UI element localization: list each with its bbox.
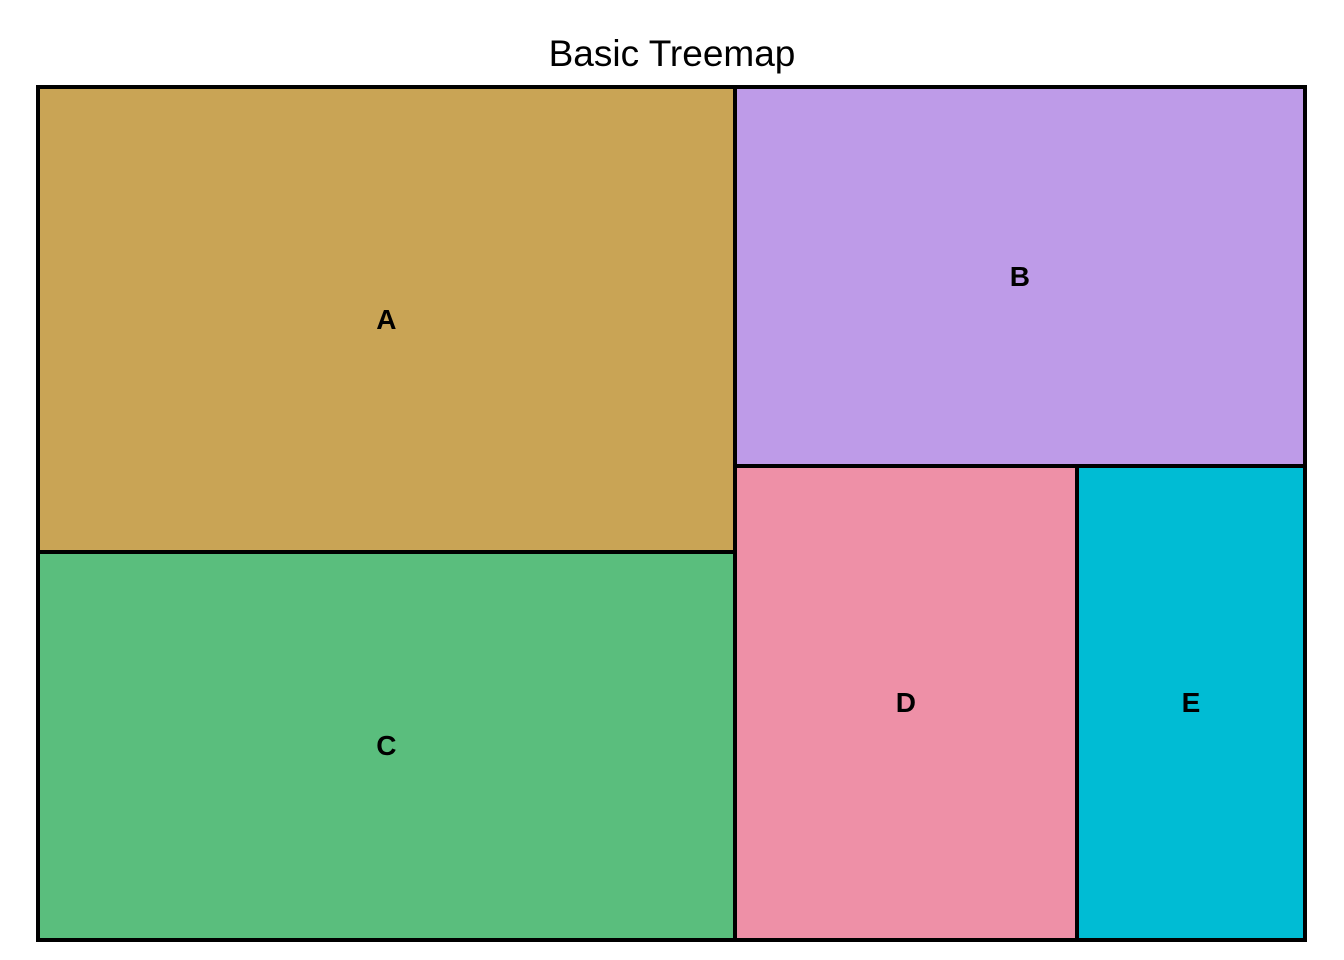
treemap-cell-c-label: C	[376, 732, 396, 760]
treemap-cell-d-label: D	[896, 689, 916, 717]
treemap-left-column: A C	[38, 87, 735, 940]
treemap-cell-d[interactable]: D	[735, 466, 1077, 940]
treemap-figure: Basic Treemap A C B D E	[0, 0, 1344, 960]
treemap-bottom-right-row: D E	[735, 466, 1305, 940]
treemap-cell-a-label: A	[376, 306, 396, 334]
treemap-right-column: B D E	[735, 87, 1305, 940]
treemap-plot-area: A C B D E	[36, 85, 1307, 942]
treemap-cell-e[interactable]: E	[1077, 466, 1305, 940]
treemap-cell-b-label: B	[1010, 263, 1030, 291]
chart-title: Basic Treemap	[0, 34, 1344, 75]
treemap-cell-c[interactable]: C	[38, 552, 735, 940]
treemap-cell-e-label: E	[1182, 689, 1201, 717]
treemap-cell-a[interactable]: A	[38, 87, 735, 552]
treemap-cell-b[interactable]: B	[735, 87, 1305, 466]
